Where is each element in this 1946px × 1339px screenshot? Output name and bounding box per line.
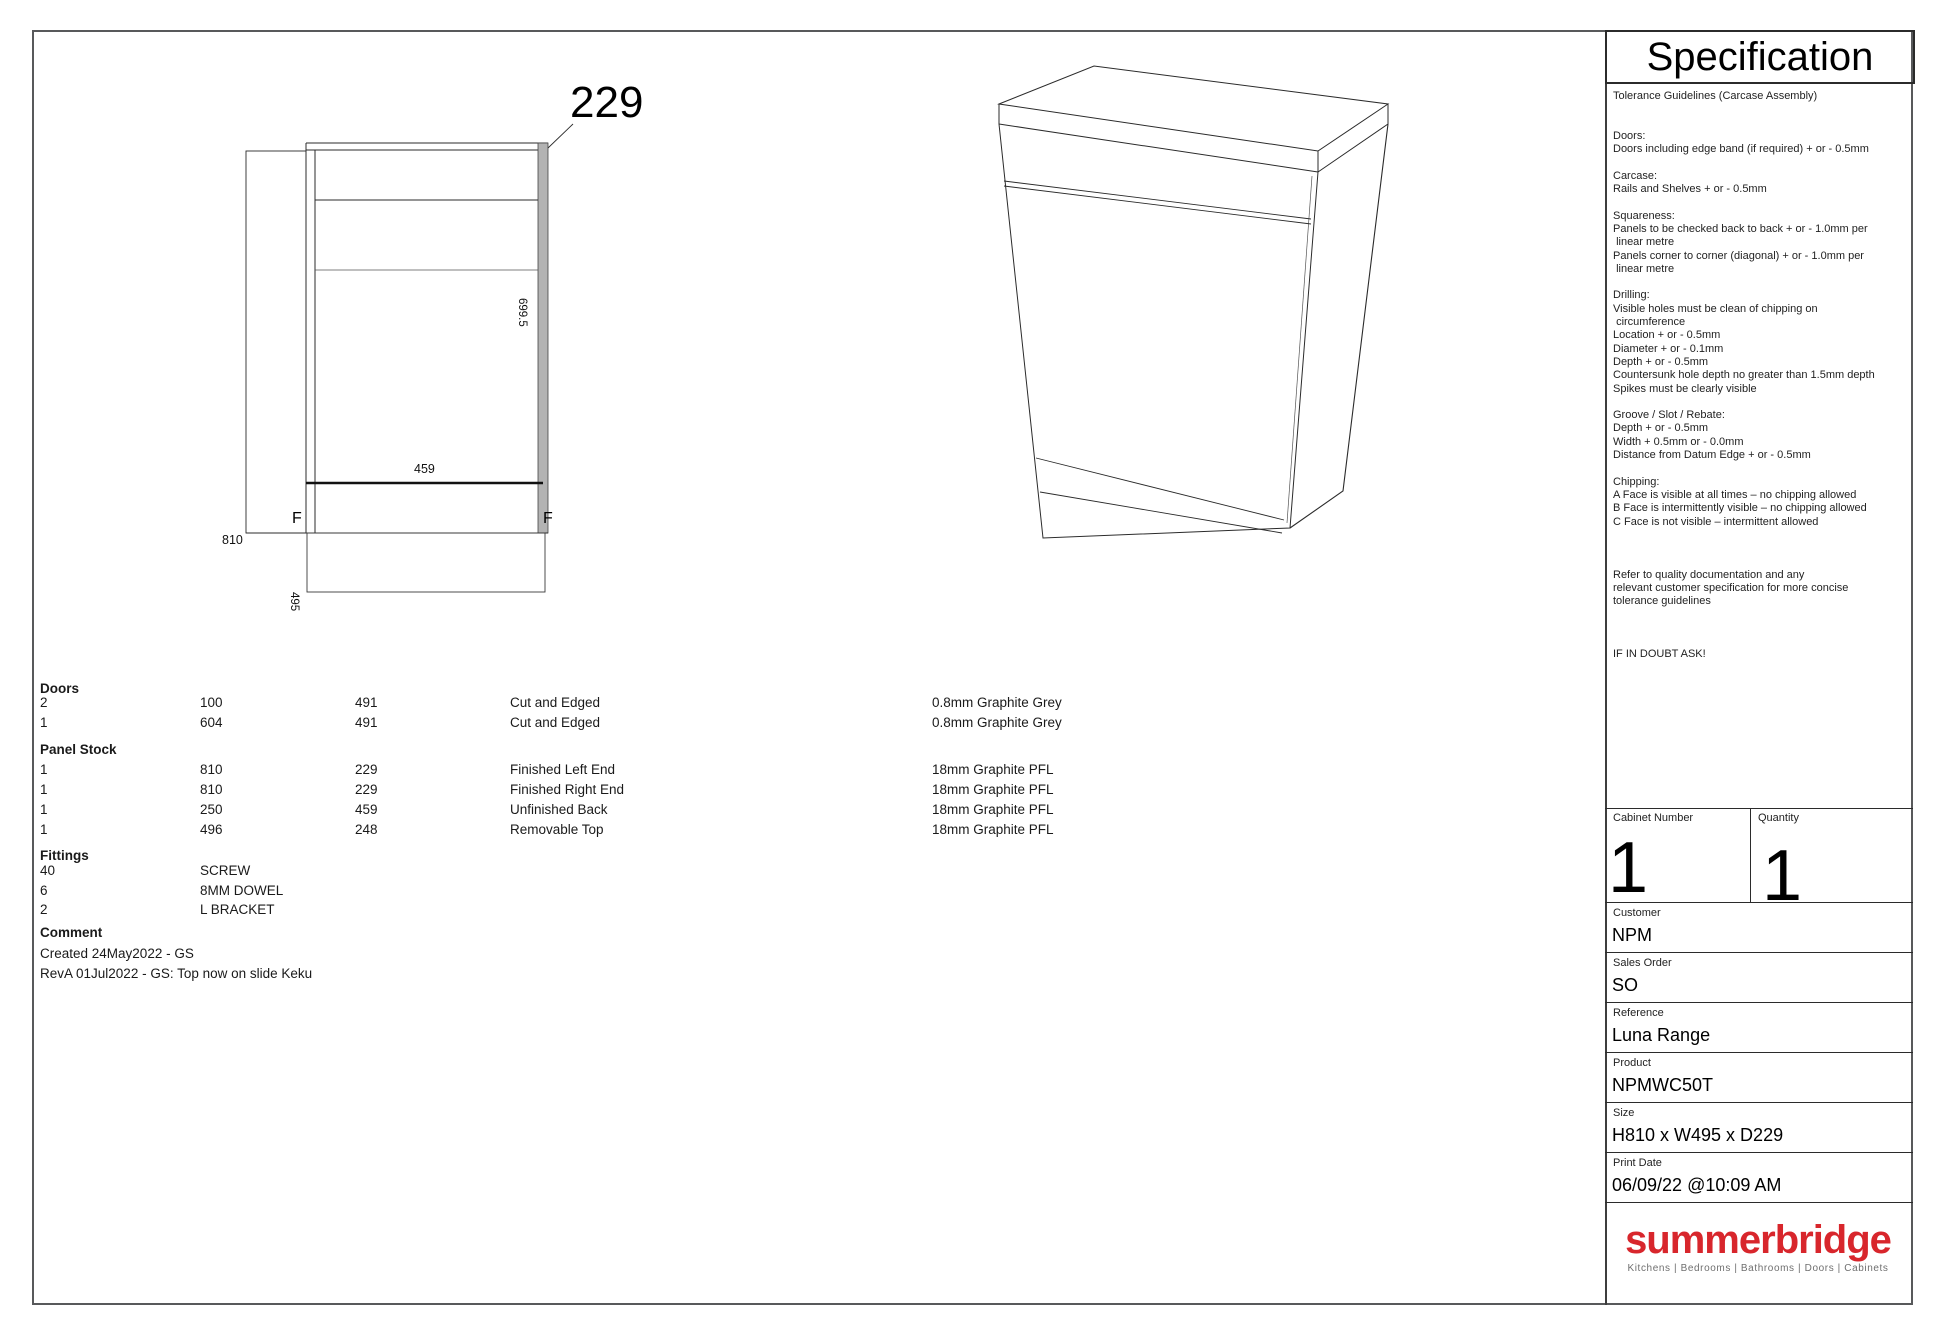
face-mark-left: F (292, 510, 302, 528)
reference-value: Luna Range (1612, 1025, 1710, 1046)
tolerance-guidelines-text: Tolerance Guidelines (Carcase Assembly) … (1613, 90, 1909, 662)
size-label: Size (1613, 1107, 1634, 1119)
product-value: NPMWC50T (1612, 1075, 1713, 1096)
section-header-panel-stock: Panel Stock (40, 742, 117, 757)
table-row: 1 810 229 Finished Right End 18mm Graphi… (40, 782, 1580, 802)
logo-tagline: Kitchens | Bedrooms | Bathrooms | Doors … (1605, 1263, 1911, 1274)
table-row: 2 100 491 Cut and Edged 0.8mm Graphite G… (40, 695, 1580, 715)
dimension-total-height-810: 810 (222, 533, 243, 547)
customer-label: Customer (1613, 907, 1661, 919)
page-title: Specification (1647, 35, 1874, 80)
reference-label: Reference (1613, 1007, 1664, 1019)
comment-text: Created 24May2022 - GS RevA 01Jul2022 - … (40, 944, 312, 984)
print-date-value: 06/09/22 @10:09 AM (1612, 1175, 1781, 1196)
spec-panel-divider (1605, 30, 1607, 1305)
print-date-label: Print Date (1613, 1157, 1662, 1169)
section-header-doors: Doors (40, 681, 79, 696)
table-row: 1 250 459 Unfinished Back 18mm Graphite … (40, 802, 1580, 822)
cabinet-number-label: Cabinet Number (1613, 812, 1693, 824)
table-row: 40 SCREW (40, 863, 1580, 883)
customer-value: NPM (1612, 925, 1652, 946)
section-header-fittings: Fittings (40, 848, 89, 863)
quantity-value: 1 (1762, 840, 1802, 912)
size-value: H810 x W495 x D229 (1612, 1125, 1783, 1146)
quantity-label: Quantity (1758, 812, 1799, 824)
table-row: 1 496 248 Removable Top 18mm Graphite PF… (40, 822, 1580, 842)
dimension-total-width-495: 495 (288, 592, 300, 611)
summerbridge-logo: summerbridge (1605, 1218, 1911, 1263)
dimension-inner-width-459: 459 (414, 462, 435, 476)
spec-title-box: Specification (1605, 30, 1915, 84)
face-mark-right: F (543, 510, 553, 528)
table-row: 1 810 229 Finished Left End 18mm Graphit… (40, 762, 1580, 782)
table-row: 6 8MM DOWEL (40, 883, 1580, 903)
dimension-depth-229: 229 (570, 78, 643, 128)
product-label: Product (1613, 1057, 1651, 1069)
specification-sheet: 229 699.5 459 810 495 F F Doors 2 100 49… (0, 0, 1946, 1339)
sales-order-label: Sales Order (1613, 957, 1672, 969)
section-header-comment: Comment (40, 925, 102, 940)
table-row: 1 604 491 Cut and Edged 0.8mm Graphite G… (40, 715, 1580, 735)
table-row: 2 L BRACKET (40, 902, 1580, 922)
sales-order-value: SO (1612, 975, 1638, 996)
cabinet-number-value: 1 (1608, 832, 1648, 904)
dimension-door-height-699-5: 699.5 (516, 298, 528, 327)
